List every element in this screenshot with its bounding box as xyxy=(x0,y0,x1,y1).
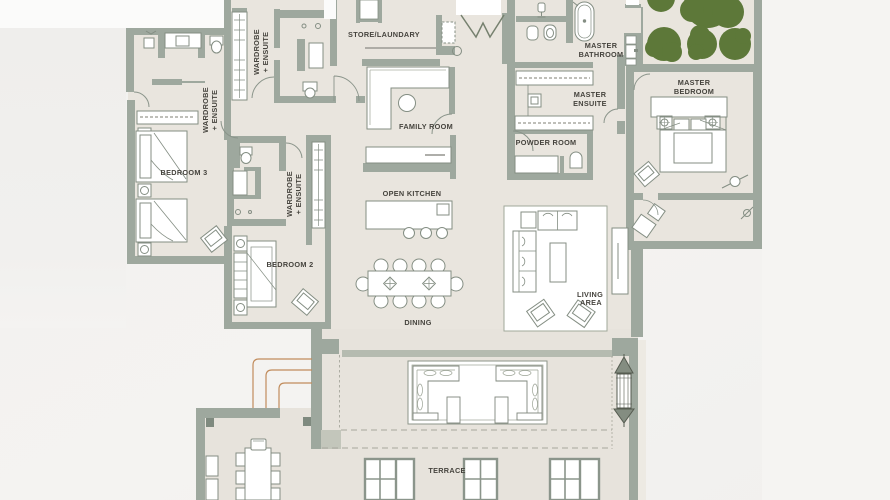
svg-text:BATHROOM: BATHROOM xyxy=(579,50,624,59)
svg-text:+ ENSUITE: + ENSUITE xyxy=(261,32,270,73)
svg-text:BEDROOM: BEDROOM xyxy=(674,87,714,96)
svg-text:OPEN KITCHEN: OPEN KITCHEN xyxy=(383,189,442,198)
svg-text:STORE/LAUNDARY: STORE/LAUNDARY xyxy=(348,30,420,39)
svg-text:WARDROBE: WARDROBE xyxy=(285,171,294,217)
svg-text:BEDROOM 2: BEDROOM 2 xyxy=(267,260,314,269)
svg-text:POWDER ROOM: POWDER ROOM xyxy=(516,138,577,147)
svg-text:MASTER: MASTER xyxy=(678,78,711,87)
svg-text:AREA: AREA xyxy=(580,298,602,307)
svg-text:TERRACE: TERRACE xyxy=(428,466,465,475)
svg-text:WARDROBE: WARDROBE xyxy=(201,87,210,133)
svg-text:MASTER: MASTER xyxy=(585,41,618,50)
svg-text:+ ENSUITE: + ENSUITE xyxy=(210,90,219,131)
svg-text:+ ENSUITE: + ENSUITE xyxy=(294,174,303,215)
svg-text:FAMILY ROOM: FAMILY ROOM xyxy=(399,122,453,131)
svg-text:BEDROOM 3: BEDROOM 3 xyxy=(161,168,208,177)
svg-text:MASTER: MASTER xyxy=(574,90,607,99)
svg-text:DINING: DINING xyxy=(404,318,431,327)
svg-text:WARDROBE: WARDROBE xyxy=(252,29,261,75)
svg-text:ENSUITE: ENSUITE xyxy=(573,99,607,108)
